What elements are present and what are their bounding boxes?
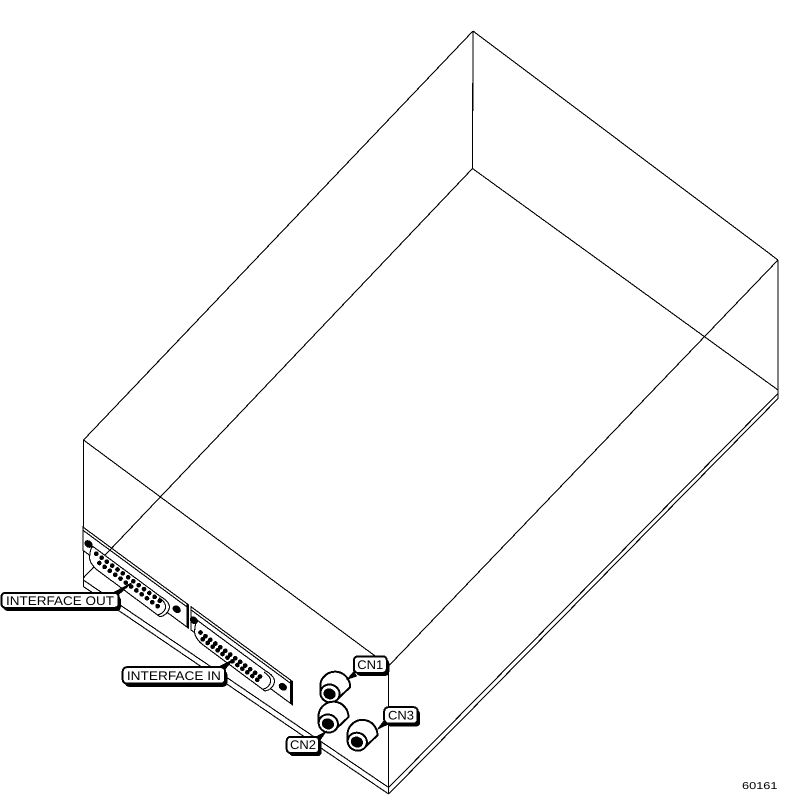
- svg-text:CN1: CN1: [357, 658, 383, 672]
- svg-text:CN2: CN2: [290, 738, 316, 752]
- svg-text:INTERFACE OUT: INTERFACE OUT: [6, 594, 114, 608]
- svg-text:60161: 60161: [742, 781, 778, 792]
- svg-text:INTERFACE IN: INTERFACE IN: [127, 669, 221, 683]
- svg-text:CN3: CN3: [388, 709, 414, 723]
